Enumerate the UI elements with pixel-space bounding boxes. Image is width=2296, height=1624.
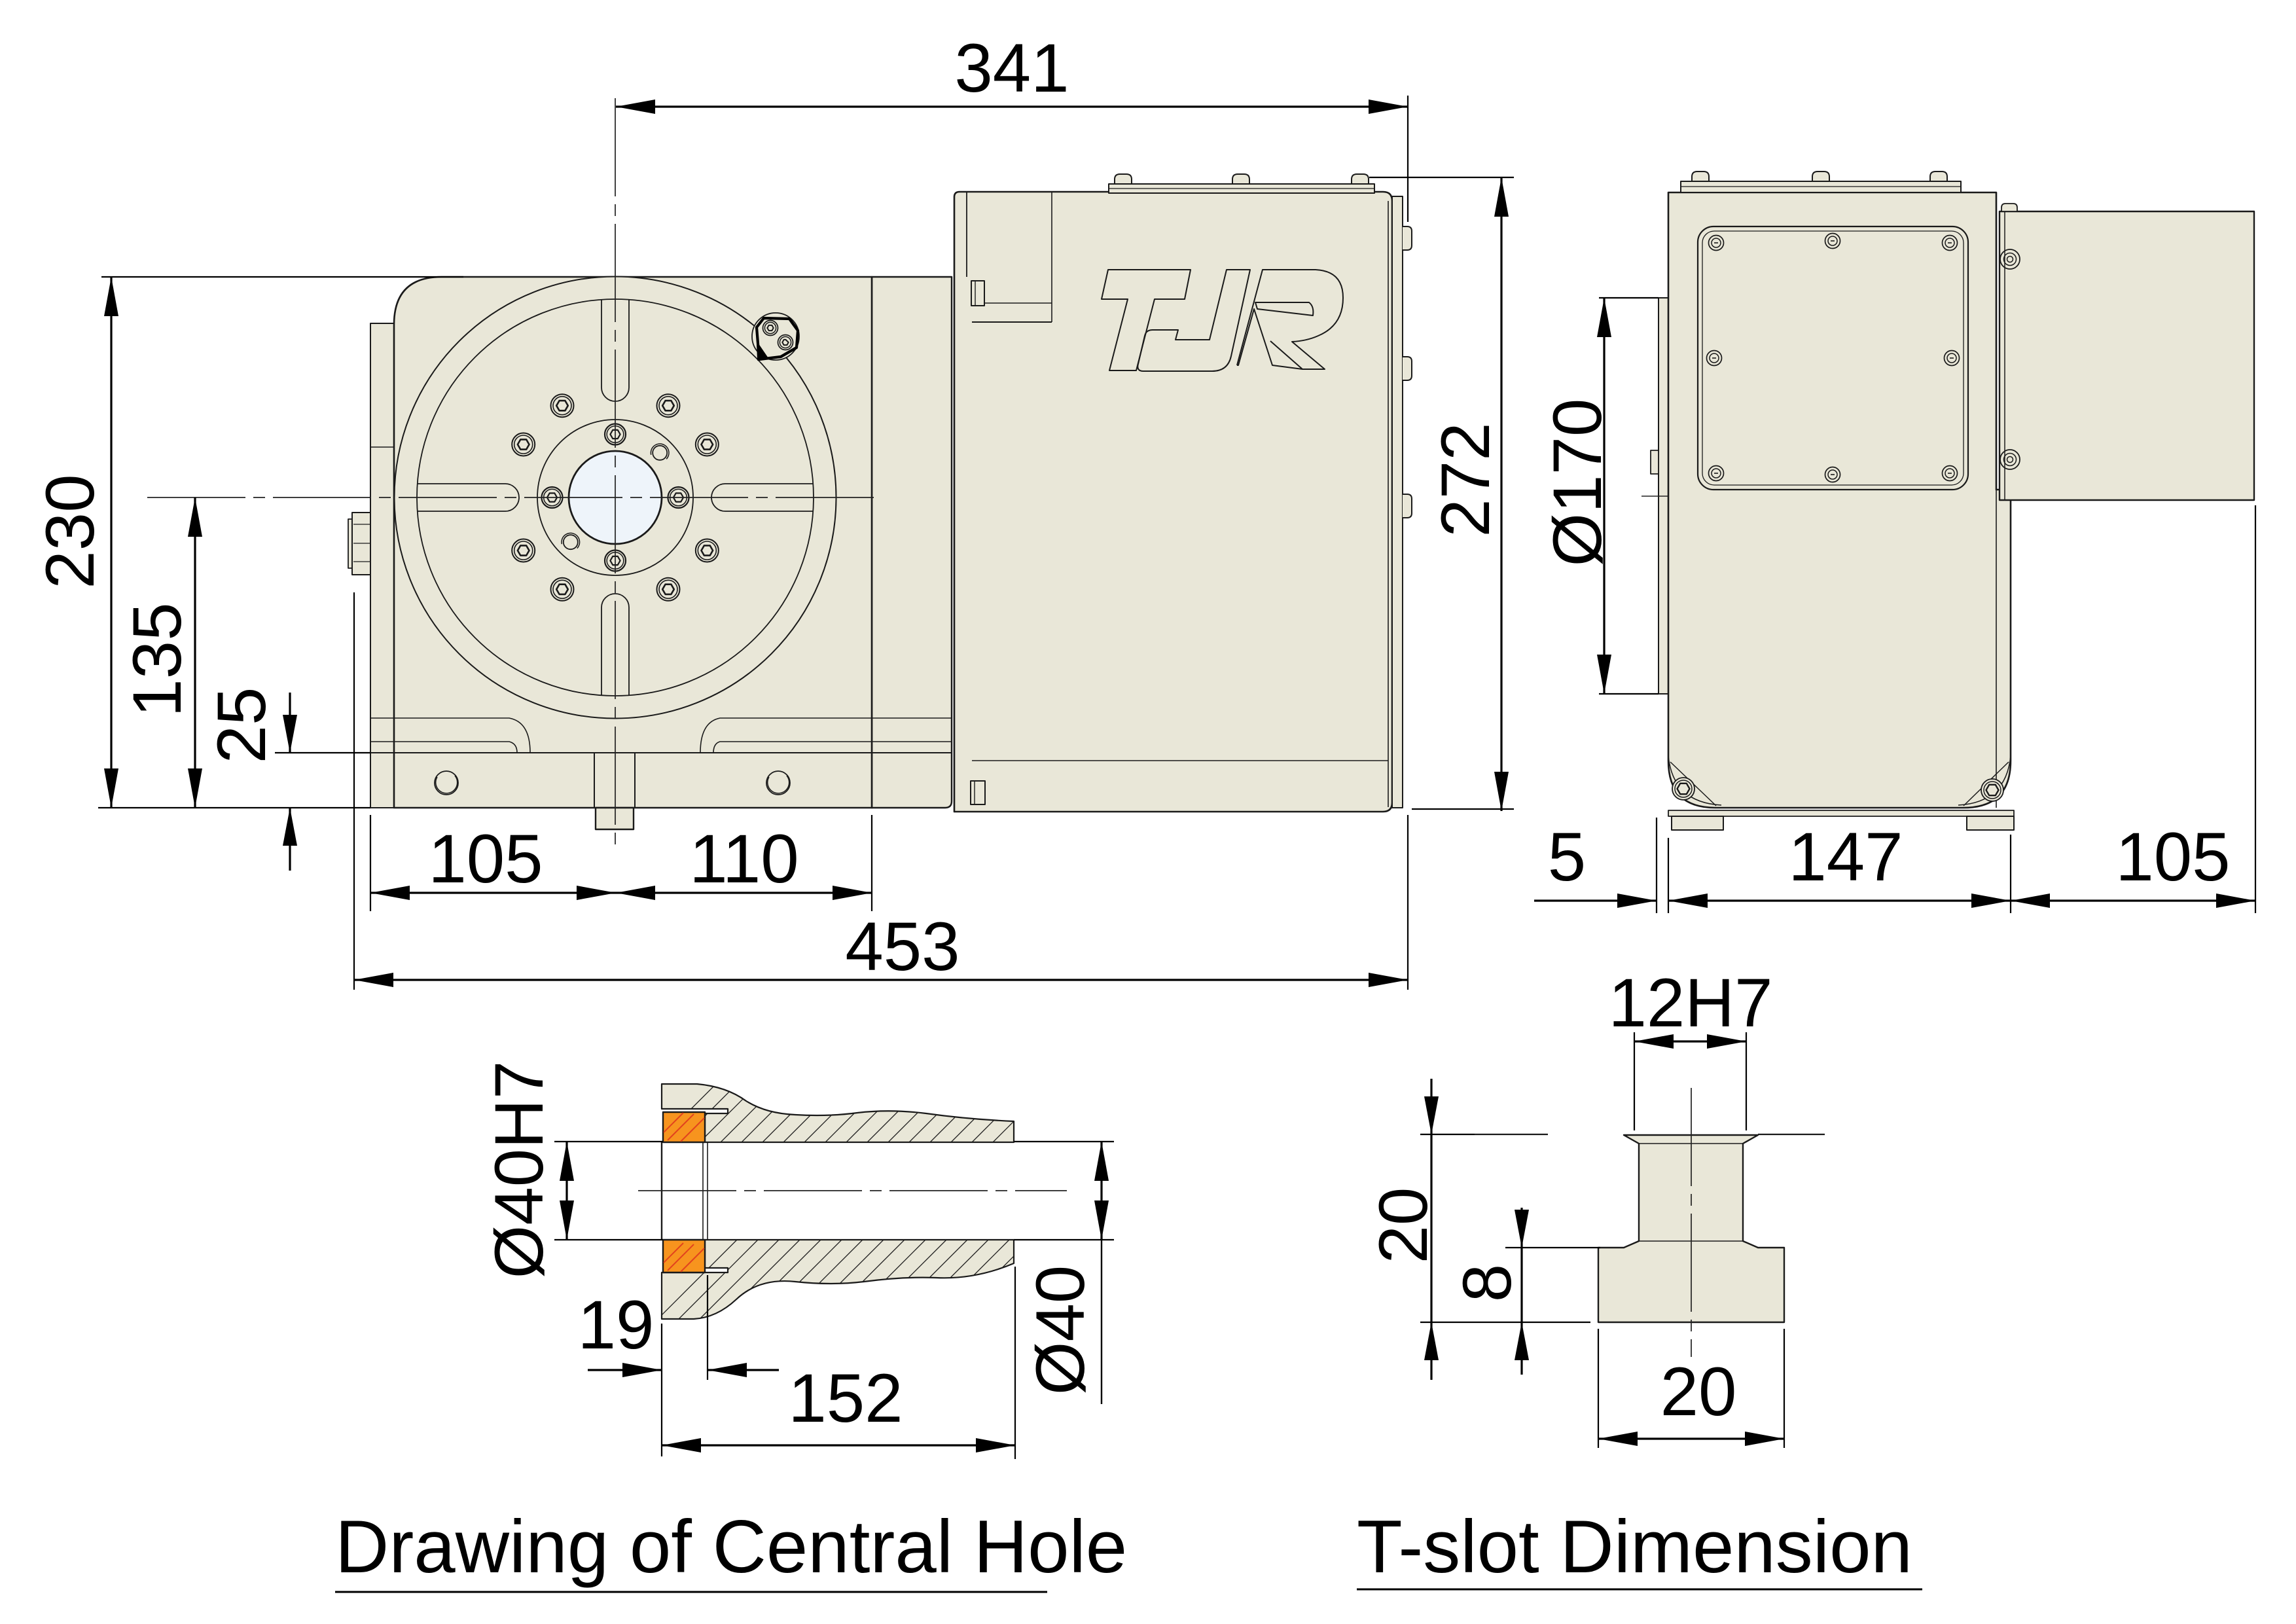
svg-text:Ø40H7: Ø40H7 <box>481 1061 558 1279</box>
svg-text:230: 230 <box>32 474 109 588</box>
svg-text:453: 453 <box>845 909 960 985</box>
svg-text:12H7: 12H7 <box>1608 965 1772 1041</box>
svg-text:105: 105 <box>2115 819 2230 895</box>
svg-text:20: 20 <box>1365 1187 1442 1264</box>
svg-text:20: 20 <box>1660 1354 1737 1430</box>
svg-text:105: 105 <box>428 821 543 897</box>
svg-text:135: 135 <box>119 602 196 717</box>
svg-text:T-slot Dimension: T-slot Dimension <box>1357 1506 1912 1589</box>
svg-text:19: 19 <box>578 1287 655 1363</box>
svg-text:152: 152 <box>788 1360 903 1437</box>
svg-text:147: 147 <box>1788 819 1903 895</box>
svg-text:Drawing of Central Hole: Drawing of Central Hole <box>335 1506 1127 1589</box>
svg-text:Ø40: Ø40 <box>1022 1265 1099 1395</box>
svg-text:Ø170: Ø170 <box>1539 399 1616 567</box>
svg-text:272: 272 <box>1427 422 1504 537</box>
svg-text:341: 341 <box>954 30 1069 107</box>
svg-text:5: 5 <box>1548 819 1586 895</box>
svg-text:25: 25 <box>204 687 280 764</box>
svg-text:110: 110 <box>689 821 798 897</box>
svg-text:8: 8 <box>1449 1264 1526 1302</box>
